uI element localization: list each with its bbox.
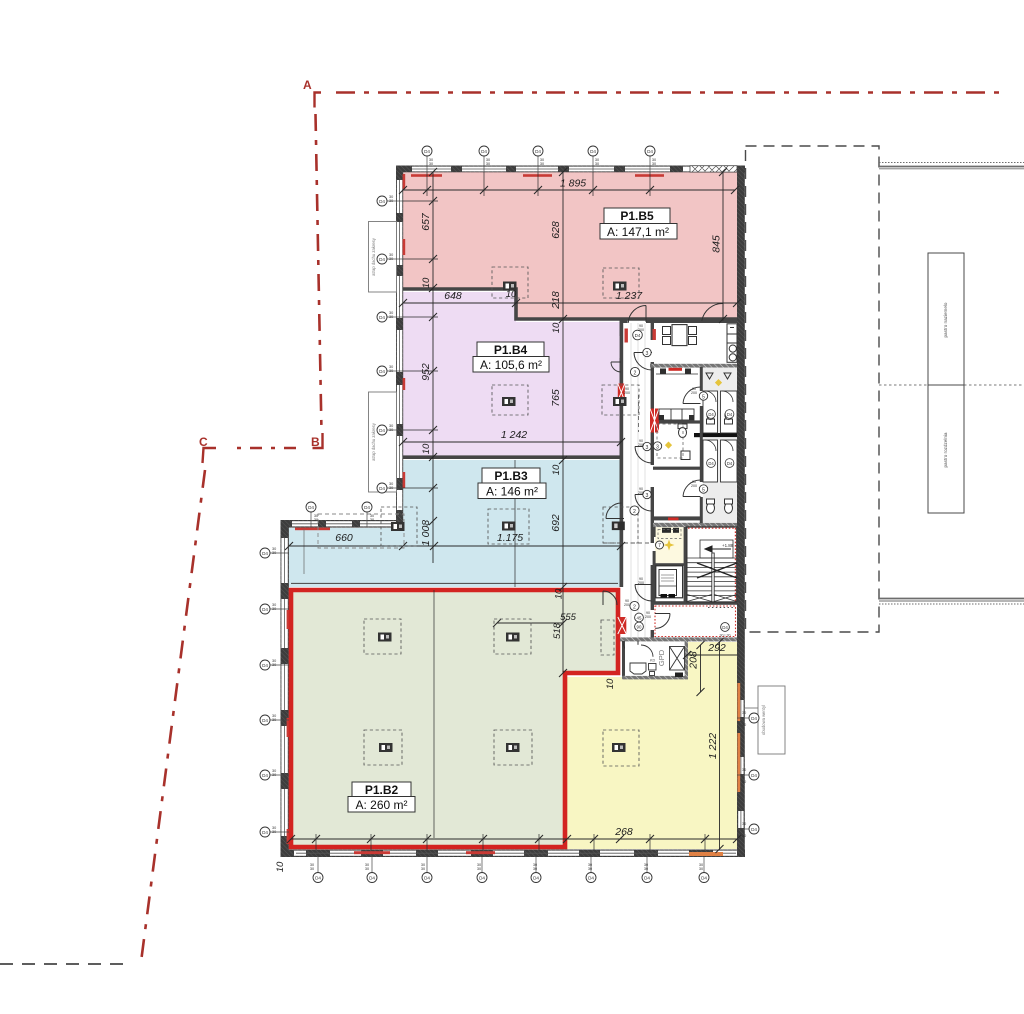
svg-text:D4: D4 <box>727 412 733 417</box>
svg-text:+1.88: +1.88 <box>722 543 734 548</box>
svg-text:30: 30 <box>421 867 425 871</box>
svg-text:30: 30 <box>272 607 276 611</box>
svg-text:A: 260 m²: A: 260 m² <box>355 798 407 812</box>
svg-text:D4: D4 <box>635 333 641 338</box>
svg-text:30: 30 <box>370 518 374 522</box>
svg-text:5: 5 <box>702 487 705 493</box>
svg-text:30: 30 <box>486 162 490 166</box>
svg-text:30 | 30: 30 | 30 <box>720 634 731 638</box>
svg-text:200: 200 <box>638 581 644 585</box>
svg-text:30: 30 <box>389 257 393 261</box>
svg-text:3: 3 <box>646 445 649 451</box>
svg-text:200: 200 <box>638 328 644 332</box>
svg-text:30: 30 <box>310 867 314 871</box>
svg-text:10: 10 <box>554 588 565 599</box>
svg-text:1 222: 1 222 <box>707 733 719 759</box>
svg-text:atrap dachu zakresy: atrap dachu zakresy <box>371 237 376 276</box>
svg-text:657: 657 <box>420 212 432 231</box>
svg-text:628: 628 <box>550 221 562 239</box>
svg-text:660: 660 <box>335 532 353 544</box>
svg-text:P1.B4: P1.B4 <box>494 343 528 357</box>
svg-text:30: 30 <box>272 830 276 834</box>
svg-text:200: 200 <box>638 443 644 447</box>
svg-text:292: 292 <box>707 642 726 654</box>
svg-text:1 242: 1 242 <box>501 429 527 441</box>
svg-text:30: 30 <box>742 711 746 715</box>
svg-text:2: 2 <box>633 604 636 610</box>
svg-text:5: 5 <box>702 394 705 400</box>
svg-text:30: 30 <box>588 867 592 871</box>
svg-text:1.175: 1.175 <box>497 532 523 544</box>
svg-text:30: 30 <box>389 199 393 203</box>
svg-text:30: 30 <box>540 162 544 166</box>
svg-text:A: 105,6 m²: A: 105,6 m² <box>480 358 542 372</box>
svg-text:90: 90 <box>637 625 642 630</box>
svg-text:P1.B5: P1.B5 <box>620 209 654 223</box>
svg-text:30: 30 <box>595 162 599 166</box>
svg-text:30: 30 <box>533 867 537 871</box>
svg-text:30: 30 <box>699 867 703 871</box>
svg-text:1 008: 1 008 <box>420 520 432 546</box>
svg-text:D4: D4 <box>722 625 728 630</box>
svg-text:30: 30 <box>429 162 433 166</box>
svg-text:30: 30 <box>389 315 393 319</box>
svg-text:30: 30 <box>652 162 656 166</box>
svg-text:2: 2 <box>634 370 637 376</box>
svg-text:30: 30 <box>272 551 276 555</box>
svg-text:7: 7 <box>658 543 661 549</box>
svg-text:10: 10 <box>605 678 616 689</box>
svg-text:30: 30 <box>272 718 276 722</box>
svg-text:30: 30 <box>742 768 746 772</box>
svg-text:30: 30 <box>742 822 746 826</box>
svg-text:GPD: GPD <box>657 649 666 666</box>
svg-text:30: 30 <box>742 723 746 727</box>
svg-text:A: 146 m²: A: 146 m² <box>486 485 538 499</box>
svg-text:3: 3 <box>646 351 649 357</box>
svg-text:10: 10 <box>275 861 286 872</box>
svg-text:30: 30 <box>365 867 369 871</box>
svg-text:1 895: 1 895 <box>560 178 586 190</box>
svg-text:pastro naziemelo: pastro naziemelo <box>943 302 948 337</box>
svg-text:10: 10 <box>551 464 562 475</box>
svg-text:2: 2 <box>633 509 636 515</box>
svg-text:30: 30 <box>742 780 746 784</box>
svg-text:3: 3 <box>646 493 649 499</box>
svg-text:obudowa wentyl: obudowa wentyl <box>761 705 766 735</box>
svg-text:200: 200 <box>691 484 697 488</box>
svg-text:atrap dachu zakresy: atrap dachu zakresy <box>371 422 376 461</box>
svg-text:P1.B3: P1.B3 <box>494 469 528 483</box>
svg-text:200: 200 <box>691 391 697 395</box>
svg-text:10: 10 <box>551 322 562 333</box>
svg-text:10: 10 <box>421 443 432 454</box>
svg-text:200: 200 <box>638 491 644 495</box>
svg-text:692: 692 <box>550 514 562 532</box>
svg-text:10: 10 <box>421 277 432 288</box>
svg-text:200: 200 <box>624 391 630 395</box>
svg-text:30: 30 <box>644 867 648 871</box>
svg-text:30: 30 <box>272 773 276 777</box>
svg-text:30: 30 <box>314 518 318 522</box>
svg-text:952: 952 <box>420 363 432 381</box>
svg-text:648: 648 <box>444 290 462 302</box>
svg-text:45: 45 <box>637 616 642 621</box>
svg-text:208: 208 <box>688 651 700 670</box>
svg-text:D4: D4 <box>708 412 714 417</box>
svg-text:200: 200 <box>645 615 651 619</box>
svg-text:D4: D4 <box>727 461 733 466</box>
svg-text:30: 30 <box>742 834 746 838</box>
svg-text:3: 3 <box>656 444 659 450</box>
svg-text:765: 765 <box>550 389 562 407</box>
svg-text:A: 147,1 m²: A: 147,1 m² <box>607 225 669 239</box>
svg-text:555: 555 <box>560 612 577 623</box>
svg-text:30: 30 <box>389 486 393 490</box>
svg-text:518: 518 <box>552 622 563 639</box>
svg-text:268: 268 <box>614 826 633 838</box>
svg-text:pastro rozdzelnia: pastro rozdzelnia <box>943 432 948 467</box>
svg-text:30: 30 <box>389 369 393 373</box>
svg-text:A: A <box>303 78 312 92</box>
svg-text:30: 30 <box>477 867 481 871</box>
svg-text:30: 30 <box>389 428 393 432</box>
svg-text:KD: KD <box>650 659 656 663</box>
svg-text:P1.B2: P1.B2 <box>365 783 399 797</box>
svg-text:200: 200 <box>624 603 630 607</box>
svg-text:30: 30 <box>272 663 276 667</box>
svg-text:D4: D4 <box>708 461 714 466</box>
svg-text:218: 218 <box>550 291 562 310</box>
svg-text:845: 845 <box>711 235 723 253</box>
